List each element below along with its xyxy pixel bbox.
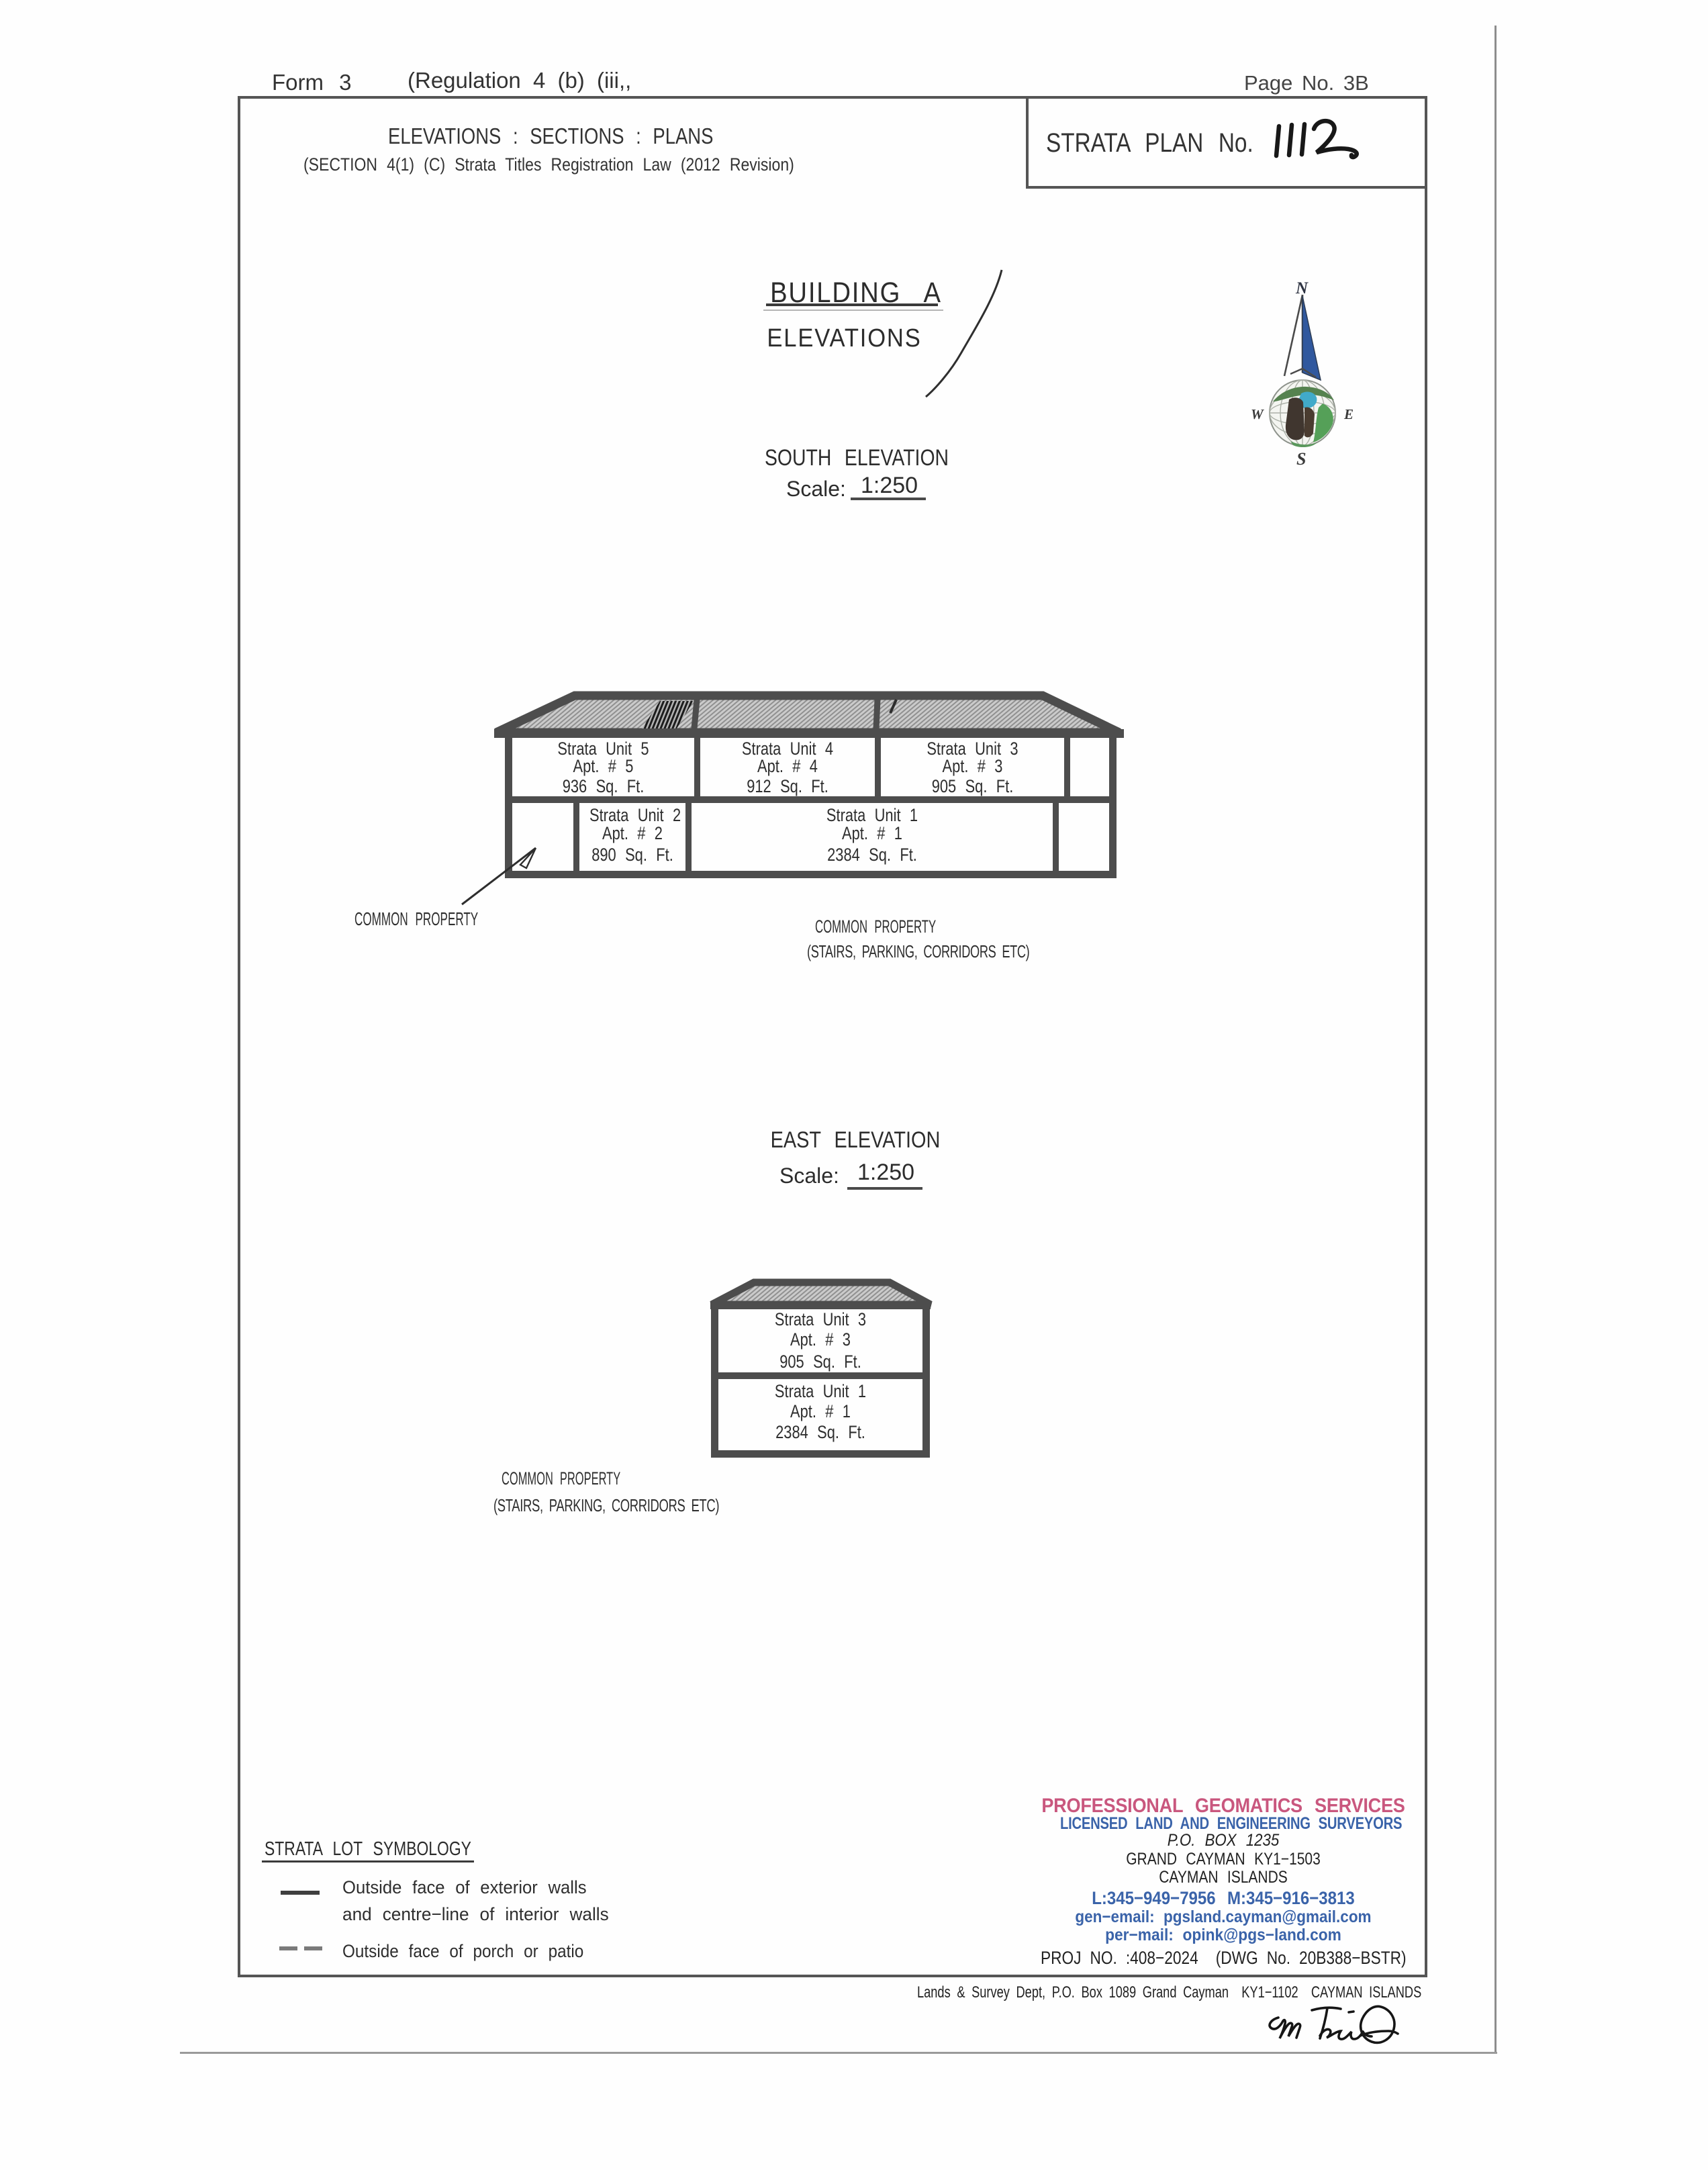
svg-text:E: E (1343, 406, 1354, 422)
svg-text:S: S (1296, 449, 1306, 469)
svg-text:W: W (1251, 406, 1264, 422)
